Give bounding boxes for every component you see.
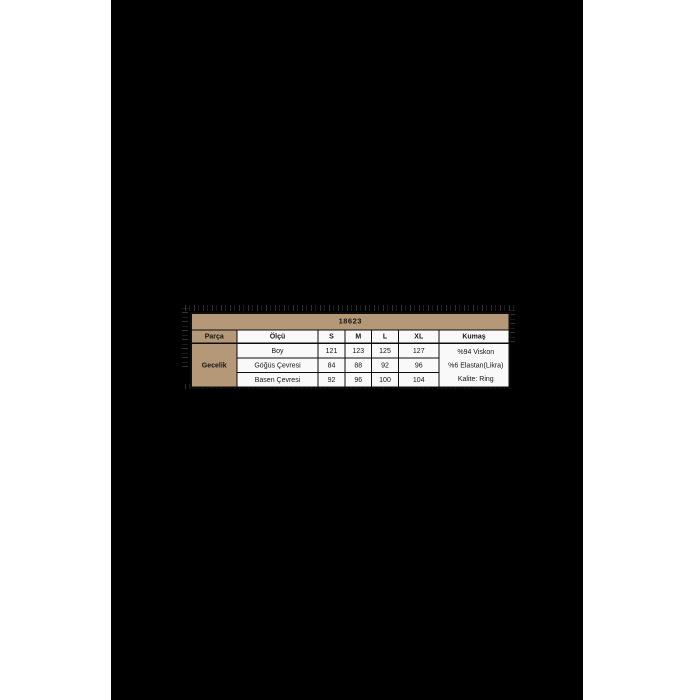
product-code: 18623 <box>191 313 510 330</box>
col-header-l: L <box>372 330 399 343</box>
product-image: 18623 Parça Ölçü S M L XL Kumaş Gecelik … <box>111 0 583 700</box>
part-name: Gecelik <box>191 343 237 387</box>
size-value: 92 <box>372 358 399 373</box>
page: 18623 Parça Ölçü S M L XL Kumaş Gecelik … <box>0 0 700 700</box>
size-chart: 18623 Parça Ölçü S M L XL Kumaş Gecelik … <box>190 312 509 389</box>
size-value: 96 <box>345 373 372 388</box>
col-header-kumas: Kumaş <box>439 330 510 343</box>
col-header-xl: XL <box>399 330 440 343</box>
size-value: 125 <box>372 343 399 358</box>
measure-label: Göğüs Çevresi <box>237 358 318 373</box>
size-chart-table: 18623 Parça Ölçü S M L XL Kumaş Gecelik … <box>190 312 511 389</box>
size-value: 121 <box>318 343 345 358</box>
table-row: Gecelik Boy 121 123 125 127 %94 Viskon %… <box>191 343 510 358</box>
scan-artifact-left <box>182 305 188 367</box>
col-header-m: M <box>345 330 372 343</box>
col-header-olcu: Ölçü <box>237 330 318 343</box>
size-value: 100 <box>372 373 399 388</box>
table-header-row: Parça Ölçü S M L XL Kumaş <box>191 330 510 343</box>
size-value: 123 <box>345 343 372 358</box>
fabric-line: %94 Viskon <box>440 345 509 359</box>
measure-label: Boy <box>237 343 318 358</box>
measure-label: Basen Çevresi <box>237 373 318 388</box>
scan-artifact-top <box>185 305 515 311</box>
size-value: 84 <box>318 358 345 373</box>
col-header-s: S <box>318 330 345 343</box>
size-value: 88 <box>345 358 372 373</box>
size-value: 127 <box>399 343 440 358</box>
scan-artifact-right <box>510 306 515 342</box>
size-value: 96 <box>399 358 440 373</box>
col-header-parca: Parça <box>191 330 237 343</box>
size-value: 92 <box>318 373 345 388</box>
size-value: 104 <box>399 373 440 388</box>
fabric-line: Kalite: Ring <box>440 372 509 386</box>
table-title-row: 18623 <box>191 313 510 330</box>
fabric-line: %6 Elastan(Likra) <box>440 359 509 373</box>
fabric-info: %94 Viskon %6 Elastan(Likra) Kalite: Rin… <box>439 343 510 387</box>
